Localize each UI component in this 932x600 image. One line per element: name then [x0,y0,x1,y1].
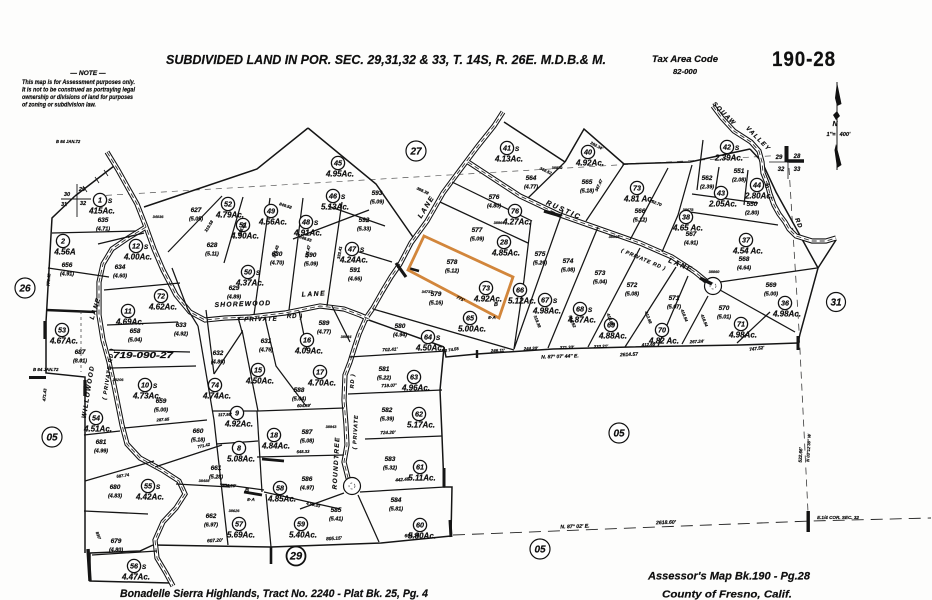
svg-text:S: S [515,146,520,153]
svg-text:S: S [341,194,346,201]
svg-text:9: 9 [235,409,239,418]
svg-text:633: 633 [176,322,187,329]
svg-text:8·A: 8·A [247,497,255,503]
svg-text:567: 567 [686,231,697,238]
svg-text:S: S [588,307,593,314]
svg-text:LANE: LANE [301,290,326,298]
svg-text:4.79Ac.: 4.79Ac. [215,211,244,220]
svg-text:5.11Ac.: 5.11Ac. [408,474,435,483]
svg-text:4.95Ac.: 4.95Ac. [325,170,354,179]
svg-text:(5.09): (5.09) [370,199,384,205]
svg-text:It is not to be construed as p: It is not to be construed as portraying … [22,87,135,94]
svg-text:(4.70): (4.70) [270,260,284,266]
svg-text:S: S [314,220,319,227]
svg-text:(4.66): (4.66) [348,276,362,282]
svg-text:ownership or divisions of land: ownership or divisions of land for purpo… [22,94,134,101]
svg-text:573: 573 [595,270,606,277]
svg-text:31: 31 [830,297,842,308]
svg-text:317.98′: 317.98′ [218,412,233,418]
svg-text:4.50Ac.: 4.50Ac. [245,377,274,386]
svg-text:681: 681 [96,439,107,446]
svg-text:S: S [153,383,158,390]
svg-text:68: 68 [576,305,584,314]
svg-text:(5.12): (5.12) [633,217,647,223]
svg-text:38: 38 [682,213,690,222]
svg-text:702.41′: 702.41′ [382,347,398,353]
svg-text:631: 631 [261,338,272,345]
svg-text:4.50Ac.: 4.50Ac. [415,344,444,353]
svg-text:27: 27 [409,146,422,157]
svg-text:29: 29 [289,550,303,562]
svg-text:1″=: 1″= [826,132,836,138]
svg-text:4.90Ac.: 4.90Ac. [230,232,259,241]
svg-text:(4.77): (4.77) [317,329,331,335]
svg-text:55: 55 [144,482,153,491]
svg-text:267.24′: 267.24′ [689,339,706,345]
svg-text:SUBDIVIDED LAND IN POR. SE: SUBDIVIDED LAND IN POR. SEC. 29,31,32 & … [166,52,606,67]
svg-text:(4.71): (4.71) [96,226,110,232]
svg-text:33: 33 [794,167,801,173]
svg-text:66: 66 [516,286,525,295]
svg-text:38489: 38489 [199,478,211,483]
svg-text:(5.04): (5.04) [593,279,607,285]
svg-text:B: B [245,488,249,494]
svg-text:County of Fresno, Calif.: County of Fresno, Calif. [662,589,792,600]
svg-text:4.47Ac.: 4.47Ac. [121,573,150,582]
svg-text:(4.97): (4.97) [300,485,314,491]
svg-text:564: 564 [526,175,537,182]
svg-text:592: 592 [359,217,370,224]
svg-text:(5.81): (5.81) [389,506,403,512]
svg-text:568: 568 [739,256,750,263]
svg-text:60: 60 [416,521,424,530]
svg-text:8·A: 8·A [488,315,496,321]
svg-text:38964: 38964 [494,220,506,225]
svg-text:660: 660 [193,428,204,435]
svg-text:551: 551 [734,168,745,175]
svg-text:63: 63 [410,373,418,382]
svg-text:4.51Ac.: 4.51Ac. [83,425,112,434]
svg-text:(5.00): (5.00) [154,407,168,413]
svg-text:(5.32): (5.32) [383,465,397,471]
svg-text:82-000: 82-000 [673,69,697,76]
svg-text:(4.91): (4.91) [60,271,74,277]
svg-text:(4.86): (4.86) [211,359,225,365]
svg-text:627: 627 [191,207,202,214]
svg-text:571: 571 [669,295,680,302]
svg-text:38678: 38678 [683,207,695,212]
svg-text:607.20′: 607.20′ [207,538,224,545]
svg-text:(5.08): (5.08) [625,291,639,297]
svg-text:566: 566 [635,208,646,215]
svg-text:S: S [735,145,740,152]
svg-text:Assessor's Map Bk.190 - Pg.2: Assessor's Map Bk.190 - Pg.28 [647,571,811,583]
svg-text:(8.01): (8.01) [73,358,87,364]
svg-text:38943: 38943 [326,424,338,429]
svg-text:38970: 38970 [552,165,564,170]
svg-text:1: 1 [98,196,102,205]
svg-text:4.56Ac.: 4.56Ac. [258,218,287,227]
svg-text:65: 65 [466,314,475,323]
svg-text:4.09Ac.: 4.09Ac. [294,347,323,356]
svg-text:(4.99): (4.99) [94,448,108,454]
svg-text:38626: 38626 [229,508,241,513]
svg-text:72: 72 [157,292,165,301]
svg-text:50: 50 [244,268,252,277]
svg-text:(5.04): (5.04) [292,396,306,402]
svg-text:S: S [108,198,113,205]
svg-text:570: 570 [719,305,730,312]
svg-text:S: S [765,183,770,190]
svg-text:28: 28 [499,238,508,247]
svg-text:4.85Ac.: 4.85Ac. [491,249,520,258]
svg-text:2614.57: 2614.57 [619,352,638,359]
svg-text:58: 58 [276,484,284,493]
svg-text:(5.18): (5.18) [580,188,594,194]
svg-text:RD ): RD ) [350,373,357,388]
svg-text:05: 05 [613,428,625,439]
svg-text:(2.39): (2.39) [700,184,714,190]
svg-text:of zoning or subdivision law.: of zoning or subdivision law. [22,102,96,109]
svg-text:2.39Ac.: 2.39Ac. [714,154,743,163]
svg-text:12: 12 [132,242,140,251]
svg-text:5.12Ac.: 5.12Ac. [508,297,536,306]
svg-text:659: 659 [156,398,167,405]
svg-text:(5.04): (5.04) [128,337,142,343]
svg-text:32: 32 [80,201,87,207]
svg-text:4.92Ac.: 4.92Ac. [224,420,253,429]
svg-text:42: 42 [722,143,731,152]
svg-text:(4.77): (4.77) [524,184,538,190]
svg-text:(5.28): (5.28) [209,474,223,480]
svg-text:(4.80): (4.80) [109,547,123,553]
svg-text:34036: 34036 [153,214,165,219]
svg-text:8: 8 [237,444,241,453]
svg-text:Bonadelle Sierra Highlands, Tr: Bonadelle Sierra Highlands, Tract No. 22… [120,588,428,600]
svg-text:5.13Ac.: 5.13Ac. [321,203,349,212]
svg-text:576: 576 [489,194,500,201]
svg-text:(5.08): (5.08) [561,267,575,273]
svg-text:(5.05): (5.05) [189,216,203,222]
svg-text:4.62Ac.: 4.62Ac. [148,303,177,312]
svg-text:569: 569 [766,282,777,289]
svg-text:2.05Ac.: 2.05Ac. [708,200,737,209]
svg-text:550: 550 [747,201,758,208]
svg-text:661: 661 [211,465,222,472]
svg-text:28: 28 [793,154,801,160]
svg-text:38860: 38860 [709,269,721,274]
svg-text:40: 40 [583,148,592,157]
svg-text:61: 61 [416,463,424,472]
svg-text:44: 44 [752,181,761,190]
svg-text:( PRIVATE: ( PRIVATE [238,317,278,324]
svg-text:76: 76 [511,207,520,216]
svg-text:805.15′: 805.15′ [326,536,343,543]
svg-text:4.27Ac.: 4.27Ac. [502,218,531,227]
svg-text:74: 74 [211,381,219,390]
svg-text:(4.89): (4.89) [227,294,241,300]
svg-text:4.85Ac.: 4.85Ac. [267,495,296,504]
svg-text:(5.01): (5.01) [717,314,731,320]
svg-text:4.96Ac.: 4.96Ac. [401,384,430,393]
svg-text:412.65′: 412.65′ [641,342,658,348]
svg-text:575: 575 [535,251,546,258]
svg-text:S: S [144,244,149,251]
svg-text:582: 582 [382,407,393,414]
svg-text:687: 687 [75,349,86,356]
svg-text:4.42Ac.: 4.42Ac. [135,493,164,502]
svg-text:4.88Ac.: 4.88Ac. [598,332,627,341]
svg-text:38206: 38206 [113,377,125,382]
svg-text:05: 05 [534,544,546,555]
svg-text:628: 628 [207,242,218,249]
svg-text:4.56A: 4.56A [53,248,76,257]
svg-text:49: 49 [266,207,275,216]
svg-text:37: 37 [742,236,751,245]
svg-text:5.17Ac.: 5.17Ac. [407,421,435,430]
svg-text:662: 662 [206,513,217,520]
svg-text:(5.26): (5.26) [533,260,547,266]
svg-text:This map is for Assessment pur: This map is for Assessment purposes only… [22,79,135,86]
svg-text:(4.94): (4.94) [393,332,407,338]
svg-text:4.54 Ac.: 4.54 Ac. [732,247,763,256]
svg-text:S: S [436,335,441,342]
svg-text:4.98Ac.: 4.98Ac. [772,310,801,319]
svg-text:57: 57 [235,520,244,529]
svg-text:67: 67 [541,296,550,305]
svg-text:(5.09): (5.09) [470,236,484,242]
svg-text:522.66′: 522.66′ [798,446,804,462]
svg-text:47: 47 [347,245,357,254]
svg-text:(5.08): (5.08) [300,438,314,444]
svg-text:565: 565 [582,179,593,186]
svg-text:N. 87° 02′ E.: N. 87° 02′ E. [560,523,589,530]
svg-text:17: 17 [316,368,325,377]
svg-text:(4.76): (4.76) [259,347,273,353]
svg-text:2: 2 [60,237,65,246]
svg-text:634: 634 [115,264,126,271]
svg-text:4.98Ac.: 4.98Ac. [728,331,757,340]
svg-text:34737: 34737 [422,289,434,294]
svg-text:4.24Ac.: 4.24Ac. [339,256,368,265]
svg-text:679: 679 [111,538,122,545]
svg-text:38968: 38968 [609,234,621,239]
svg-text:05: 05 [46,432,58,443]
svg-text:(4.83): (4.83) [108,493,122,499]
svg-text:584: 584 [391,497,402,504]
svg-text:(4.64): (4.64) [737,265,751,271]
svg-text:73: 73 [633,184,641,193]
svg-text:(5.00): (5.00) [764,291,778,297]
svg-text:572: 572 [627,282,638,289]
svg-text:E.1/4 COR. SEC. 32: E.1/4 COR. SEC. 32 [817,515,859,520]
svg-text:604.59′: 604.59′ [297,403,312,409]
svg-text:(5.22): (5.22) [377,375,391,381]
svg-text:454.26′: 454.26′ [221,483,237,489]
svg-text:5.08Ac.: 5.08Ac. [227,455,255,464]
svg-text:190-28: 190-28 [772,47,836,71]
svg-text:48: 48 [301,218,310,227]
svg-text:26: 26 [18,283,31,294]
svg-text:(2.80): (2.80) [745,210,759,216]
svg-text:B: B [494,302,498,308]
svg-text:4.92Ac.: 4.92Ac. [575,159,604,168]
svg-text:(5.11): (5.11) [205,251,219,257]
svg-text:(6.97): (6.97) [204,522,218,528]
svg-text:54: 54 [92,414,100,423]
svg-text:S: S [553,298,558,305]
svg-text:2618.60′: 2618.60′ [655,520,677,527]
svg-text:585: 585 [331,507,342,514]
svg-text:4.74Ac.: 4.74Ac. [202,392,231,401]
svg-text:(4.92): (4.92) [174,331,188,337]
svg-text:4.69Ac.: 4.69Ac. [115,318,144,327]
svg-text:586: 586 [302,476,313,483]
svg-text:4.13Ac.: 4.13Ac. [494,155,523,164]
svg-text:4.00Ac.: 4.00Ac. [123,253,152,262]
svg-text:56: 56 [130,562,139,571]
svg-text:(5.09): (5.09) [304,261,318,267]
svg-text:(4.60): (4.60) [113,273,127,279]
svg-text:59: 59 [297,520,305,529]
svg-text:(5.16): (5.16) [429,300,443,306]
svg-text:4.67Ac.: 4.67Ac. [49,337,78,346]
svg-text:591: 591 [350,267,361,274]
svg-text:648.33: 648.33 [296,449,310,454]
svg-text:73: 73 [482,284,490,293]
svg-text:587: 587 [302,429,313,436]
svg-text:656: 656 [62,262,73,269]
svg-text:629: 629 [229,285,240,292]
svg-text:244.20′: 244.20′ [523,346,540,352]
svg-text:70: 70 [658,326,666,335]
svg-text:5.40Ac.: 5.40Ac. [289,531,317,540]
svg-text:680: 680 [110,484,121,491]
svg-text:593: 593 [372,190,383,197]
svg-text:604.15: 604.15 [404,533,419,540]
svg-text:271.33′: 271.33′ [559,345,576,351]
svg-text:B 84 JAN.72: B 84 JAN.72 [56,139,81,144]
svg-text:43: 43 [716,189,725,198]
svg-text:S: S [256,270,261,277]
svg-text:632: 632 [213,350,224,357]
svg-text:588: 588 [294,387,305,394]
svg-text:71: 71 [737,320,745,329]
svg-text:46: 46 [328,192,338,201]
svg-text:(5.33): (5.33) [357,226,371,232]
svg-text:— NOTE —: — NOTE — [69,70,106,77]
svg-text:5.69Ac.: 5.69Ac. [227,531,255,540]
svg-text:658: 658 [130,328,141,335]
svg-text:S: S [360,247,365,254]
svg-text:(5.41): (5.41) [329,516,343,522]
svg-text:52: 52 [224,200,232,209]
svg-text:(5.12): (5.12) [445,268,459,274]
svg-text:580: 580 [395,323,406,330]
svg-text:5.00Ac.: 5.00Ac. [458,325,486,334]
svg-text:B 84 JAN.72: B 84 JAN.72 [33,367,59,372]
svg-text:(5.07): (5.07) [667,304,681,310]
svg-text:41: 41 [502,144,511,153]
svg-text:10: 10 [141,381,149,390]
svg-text:415Ac.: 415Ac. [88,207,115,216]
svg-text:(4.91): (4.91) [684,240,698,246]
svg-text:581: 581 [379,366,390,373]
svg-text:45: 45 [333,159,343,168]
svg-text:16: 16 [303,336,312,345]
svg-text:36: 36 [781,299,790,308]
svg-text:S: S [142,564,147,571]
svg-text:18: 18 [270,431,278,440]
svg-text:53: 53 [58,326,66,335]
svg-text:30: 30 [64,192,71,198]
svg-text:724.20′: 724.20′ [380,430,396,436]
svg-text:246.11′: 246.11′ [490,348,506,354]
svg-text:4.70Ac.: 4.70Ac. [307,379,336,388]
svg-text:S: S [156,484,161,491]
svg-text:2.80Ac.: 2.80Ac. [744,192,773,201]
svg-text:(2.08): (2.08) [732,177,746,183]
svg-text:232.21′: 232.21′ [593,344,610,350]
svg-text:574: 574 [563,258,574,265]
svg-text:11: 11 [124,307,131,316]
svg-text:719-090-27: 719-090-27 [113,350,175,360]
svg-text:32: 32 [778,167,785,173]
svg-text:64: 64 [424,333,432,342]
svg-text:(4.80): (4.80) [487,203,501,209]
svg-text:578: 578 [447,259,458,266]
svg-text:(5.39): (5.39) [380,416,394,422]
svg-text:4.84Ac.: 4.84Ac. [261,442,290,451]
svg-text:15: 15 [254,366,263,375]
svg-text:562: 562 [702,175,713,182]
svg-text:635: 635 [98,217,109,224]
svg-text:Tax Area Code: Tax Area Code [652,54,718,64]
svg-text:577: 577 [472,227,483,234]
svg-text:38944: 38944 [341,334,353,339]
svg-text:400′: 400′ [839,132,851,138]
svg-text:589: 589 [319,320,330,327]
svg-text:719.07′: 719.07′ [381,383,397,389]
svg-text:583: 583 [385,456,396,463]
svg-text:62: 62 [415,410,423,419]
